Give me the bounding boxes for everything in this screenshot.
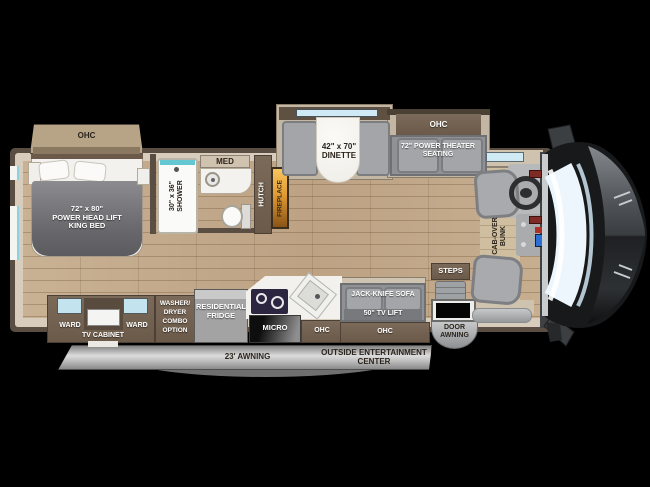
fireplace-label: FIREPLACE xyxy=(274,164,287,234)
bedroom-ohc-label: OHC xyxy=(30,131,143,140)
king-bed-label: 72" x 80" POWER HEAD LIFT KING BED xyxy=(32,205,142,231)
faucet-icon xyxy=(211,178,215,182)
kitchen-faucet-icon xyxy=(315,294,320,299)
kitchen-ohc-label: OHC xyxy=(301,327,343,335)
tv-drawer xyxy=(88,341,118,347)
ward-mirror-icon xyxy=(57,298,82,314)
rv-floorplan: 23' AWNING OUTSIDE ENTERTAINMENT CENTER … xyxy=(0,0,650,487)
ward-mirror-icon xyxy=(123,298,148,314)
tv-icon xyxy=(87,309,120,326)
cabover-bunk-label: CAB-OVER BUNK xyxy=(491,204,509,268)
burner-icon xyxy=(271,296,284,309)
sofa-ohc-label: OHC xyxy=(340,328,430,336)
bedroom-ohc-front xyxy=(33,147,140,154)
entry-steps-icon xyxy=(435,281,466,301)
outside-entertainment-label: OUTSIDE ENTERTAINMENT CENTER xyxy=(312,348,436,366)
bedroom-window-icon xyxy=(10,166,19,180)
ward-left-label: WARD xyxy=(52,322,88,330)
washer-dryer-label: WASHER/ DRYER COMBO OPTION xyxy=(155,299,195,335)
headboard xyxy=(31,154,143,159)
dinette-label: 42" x 70" DINETTE xyxy=(296,142,382,160)
running-board xyxy=(472,308,532,323)
burner-icon xyxy=(256,293,267,304)
fridge-label: RESIDENTIAL FRIDGE xyxy=(194,303,248,320)
med-label: MED xyxy=(200,157,250,166)
dinette-window-icon xyxy=(296,109,378,117)
steps-label: STEPS xyxy=(431,267,470,276)
bedroom-window-icon xyxy=(10,206,19,260)
pillow xyxy=(73,160,107,182)
toilet-icon xyxy=(221,205,243,228)
nightstand xyxy=(137,168,150,185)
cabover-window-icon xyxy=(486,152,524,162)
ward-right-label: WARD xyxy=(119,322,155,330)
door-awning-label: DOOR AWNING xyxy=(431,324,478,340)
bath-wall xyxy=(150,154,156,234)
theater-ohc-label: OHC xyxy=(396,120,481,129)
tv-cabinet-label: TV CABINET xyxy=(72,332,134,340)
micro-label: MICRO xyxy=(249,324,301,333)
shower-label: 30" x 36" SHOWER xyxy=(168,161,186,231)
hutch-label: HUTCH xyxy=(257,160,270,230)
front-step xyxy=(546,322,562,342)
awning-label: 23' AWNING xyxy=(200,352,295,361)
sofa-label: JACK-KNIFE SOFA xyxy=(340,291,426,299)
door-opening xyxy=(436,303,470,318)
theater-label: 72" POWER THEATER SEATING xyxy=(388,143,488,159)
tv-lift-label: 50" TV LIFT xyxy=(340,310,426,318)
pillow xyxy=(38,159,70,182)
front-cap xyxy=(526,116,650,354)
